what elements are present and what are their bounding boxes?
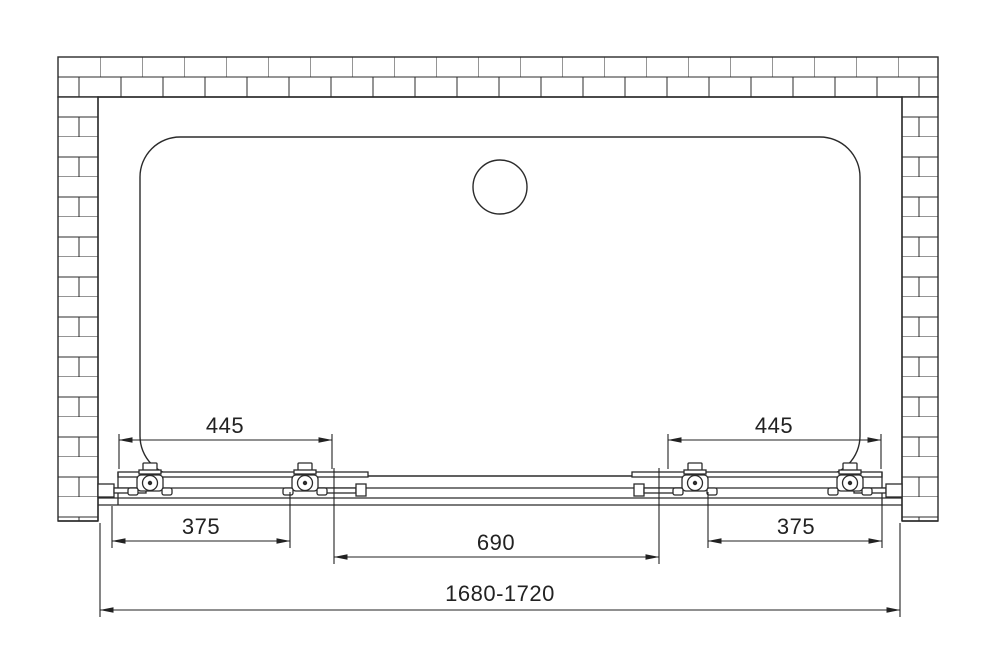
dimension-lower-center: 690: [334, 468, 659, 564]
glass-panel: [140, 137, 860, 476]
roller-hub: [303, 481, 307, 485]
roller-assemblies: [128, 463, 872, 495]
dimension-lower-left: 375: [112, 492, 290, 548]
roller-foot-right: [317, 488, 327, 495]
roller-assembly-4: [828, 463, 872, 495]
dimension-upper-left: 445: [119, 413, 332, 469]
roller-hub: [693, 481, 697, 485]
brick-wall-right: [902, 97, 938, 521]
roller-assembly-3: [673, 463, 717, 495]
roller-assembly-2: [283, 463, 327, 495]
roller-flange: [839, 470, 861, 474]
dimension-label: 1680-1720: [445, 581, 555, 606]
circle-detail: [473, 160, 527, 214]
dimension-label: 375: [182, 514, 220, 539]
roller-assembly-1: [128, 463, 172, 495]
roller-foot-left: [673, 488, 683, 495]
arm-cap-right-inner: [634, 484, 644, 496]
wall-bracket-left: [98, 484, 114, 497]
roller-flange: [139, 470, 161, 474]
brick-wall-top: [58, 57, 938, 97]
bottom-track: [98, 472, 902, 505]
roller-hub: [148, 481, 152, 485]
dimension-lower-right: 375: [708, 492, 882, 548]
brick-wall-left: [58, 97, 98, 521]
wall-bracket-right: [886, 484, 902, 497]
roller-foot-right: [862, 488, 872, 495]
roller-foot-left: [828, 488, 838, 495]
dimension-upper-right: 445: [668, 413, 881, 469]
dimension-label: 445: [206, 413, 244, 438]
roller-flange: [684, 470, 706, 474]
mounting-hardware: [98, 484, 902, 497]
roller-foot-right: [162, 488, 172, 495]
shower-door-elevation-diagram: 445 445 375 690 375 1680-1720: [0, 0, 1000, 655]
roller-flange: [294, 470, 316, 474]
arm-cap-left-inner: [356, 484, 366, 496]
dimension-label: 690: [477, 530, 515, 555]
roller-foot-left: [128, 488, 138, 495]
dimension-label: 445: [755, 413, 793, 438]
dimension-label: 375: [777, 514, 815, 539]
roller-foot-left: [283, 488, 293, 495]
roller-hub: [848, 481, 852, 485]
technical-drawing-canvas: 445 445 375 690 375 1680-1720: [0, 0, 1000, 655]
brick-wall: [58, 57, 938, 521]
